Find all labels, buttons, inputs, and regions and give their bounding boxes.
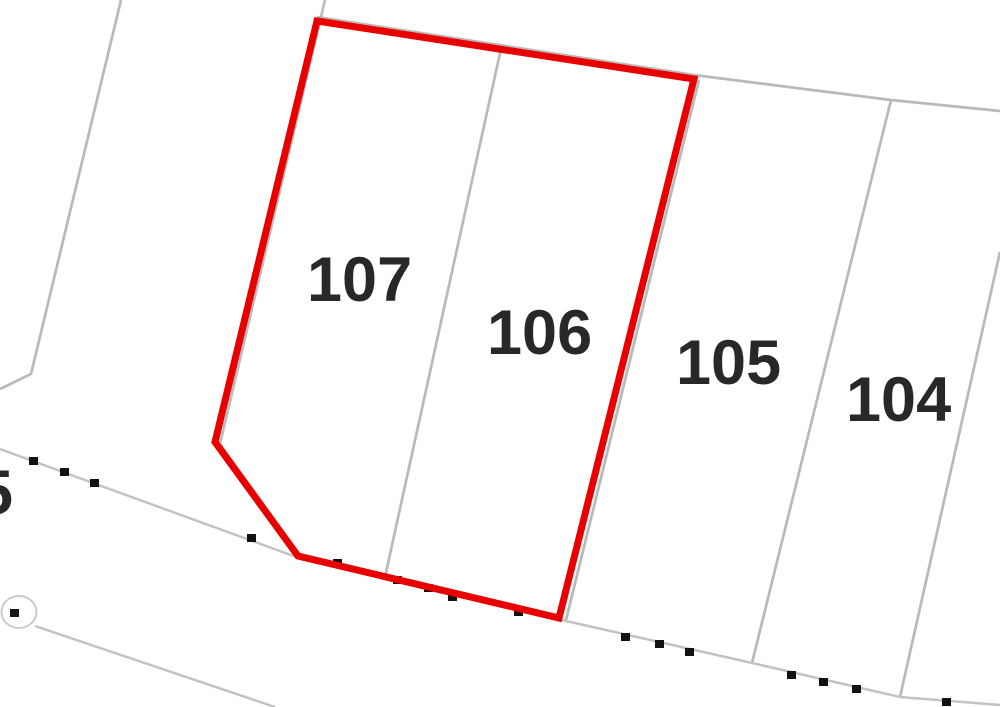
svg-text:104: 104 [846,365,951,435]
svg-text:107: 107 [307,245,412,315]
svg-text:105: 105 [676,328,781,398]
svg-text:106: 106 [487,298,592,368]
svg-text:5: 5 [0,458,13,528]
